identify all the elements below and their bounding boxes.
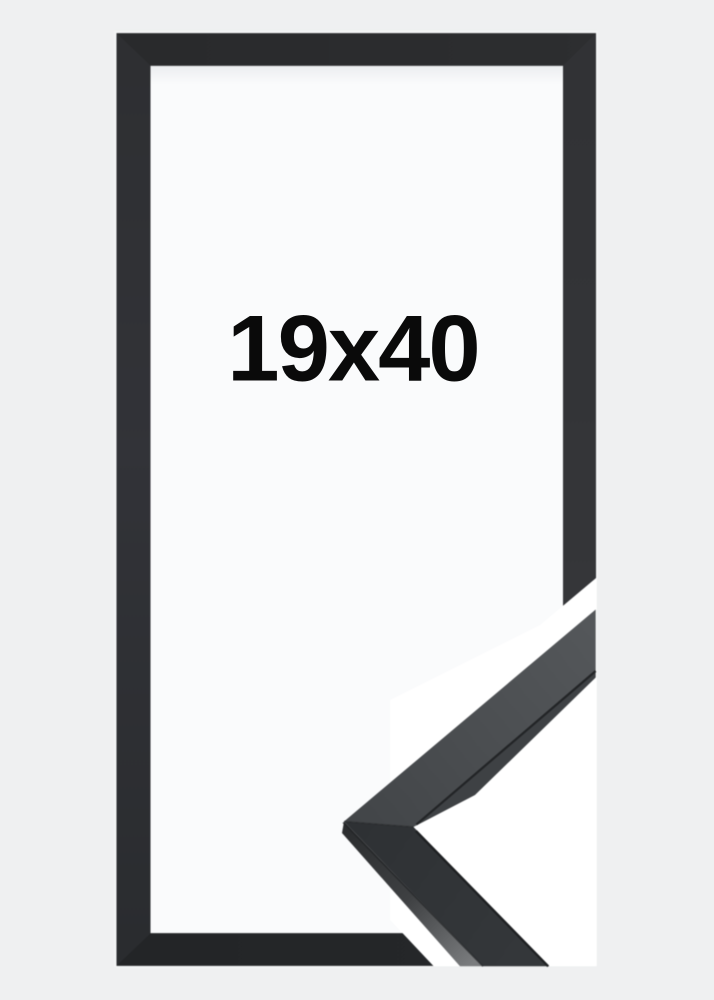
svg-text:19x40: 19x40 [227, 296, 478, 401]
